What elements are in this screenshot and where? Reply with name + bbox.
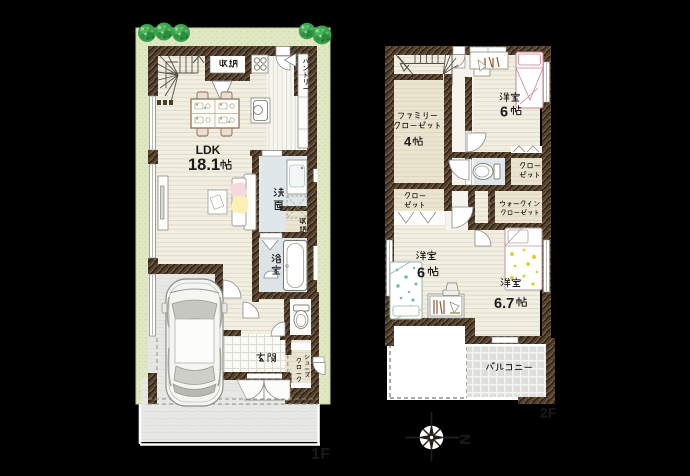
- svg-text:N: N: [456, 434, 473, 445]
- svg-text:6.7: 6.7: [494, 296, 514, 312]
- svg-text:6: 6: [417, 266, 425, 282]
- svg-text:1F: 1F: [311, 446, 331, 463]
- svg-text:4: 4: [404, 134, 412, 149]
- svg-text:2F: 2F: [540, 405, 557, 421]
- svg-text:LDK: LDK: [196, 143, 221, 157]
- svg-text:18.1: 18.1: [188, 156, 220, 174]
- svg-text:6: 6: [500, 105, 508, 121]
